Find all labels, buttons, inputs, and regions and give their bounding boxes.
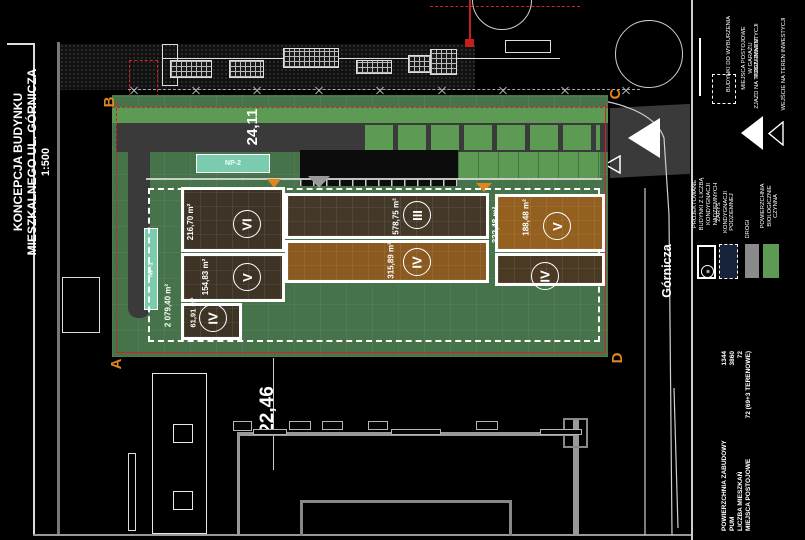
storey-number: IV (409, 256, 424, 268)
legend-label-bio-active: POWIERZCHNIA BIOLOGICZNIE CZYNNA (763, 175, 777, 237)
bay-window (368, 421, 388, 430)
legend-icon-building-outline: III (697, 245, 716, 279)
storey-number: V (239, 273, 254, 282)
stats-row: MIEJSCA POSTOJOWE 72 (69+3 TERENOWE) (745, 351, 753, 531)
area-label-iv-small: 61,91 m² (189, 293, 198, 333)
area-label-iv-center: 315,89 m² (387, 239, 396, 283)
bay-window (322, 421, 343, 430)
bay-window (233, 421, 252, 431)
stats-value: 72 (737, 351, 745, 358)
stats-row: LICZBA MIESZKAŃ 72 (737, 351, 745, 531)
stats-row: POWIERZCHNIA ZABUDOWY 1344 (721, 351, 729, 531)
building-iii (285, 193, 489, 239)
bay-window (253, 429, 287, 435)
area-label-v-right: 188,48 m² (522, 196, 531, 240)
legend-icon-roads (745, 244, 759, 278)
legend-label-entry-pedestrian: WEJŚCIE NA TEREN INWESTYCJI (780, 12, 788, 116)
legend-label-underground-outline: ZARYS KONDYGNACJI PODZIEMNEJ (719, 183, 733, 241)
bay-window (540, 429, 582, 435)
storey-badge-v-left: V (233, 263, 261, 291)
np2-label: NP-2 (225, 160, 241, 167)
legend-icon-underground (719, 244, 738, 279)
bay-window (476, 421, 498, 430)
boundary-red-left (116, 103, 117, 353)
corner-marker-a: A (107, 354, 127, 374)
legend-label-entry-vehicle: ZJAZD NA TEREN INWESTYCJI (753, 17, 761, 115)
storey-number: III (410, 210, 425, 221)
stats-row: PUM 3860 (729, 351, 737, 531)
lawn-stall-band (458, 152, 600, 178)
bay-window (289, 421, 311, 430)
storey-number: V (549, 222, 564, 231)
corner-marker-c: C (606, 84, 626, 104)
storey-badge-iv-center: IV (403, 248, 431, 276)
legend-icon-demolition-line (699, 38, 701, 96)
existing-building-wall (237, 432, 240, 535)
walkway-line (146, 178, 602, 180)
stats-value: 1344 (721, 351, 729, 365)
legend-icon-storeys: III (705, 270, 710, 274)
stats-value: 3860 (729, 351, 737, 365)
storey-badge-vi: VI (233, 210, 261, 238)
corner-marker-d: D (608, 348, 628, 368)
boundary-red-right (605, 103, 606, 352)
investment-site: NP-2 NP-1 VI III V IV IV V IV (112, 95, 608, 357)
boundary-red-bottom (116, 352, 605, 353)
garage-ramp-arrow-icon (308, 176, 330, 188)
legend-icon-bio-active (763, 244, 779, 278)
corner-marker-b: B (100, 92, 120, 112)
area-label-v-left: 154,83 m² (201, 253, 211, 301)
storey-number: IV (537, 270, 552, 282)
bay-window (391, 429, 441, 435)
storey-badge-v-right: V (543, 212, 571, 240)
dimension-top: 24,11 (244, 104, 262, 150)
area-label-iv-right: 332,48 m² (491, 199, 501, 251)
legend-label-demolition: BUDYNKI DO WYBURZENIA (725, 8, 733, 100)
storey-badge-iv-small: IV (199, 304, 227, 332)
site-plan-canvas: KONCEPCJA BUDYNKU MIESZKALNEGO UL. GÓRNI… (0, 0, 805, 540)
stats-label: MIEJSCA POSTOJOWE (745, 459, 753, 531)
site-entry-arrow-icon (628, 118, 660, 158)
stats-label: LICZBA MIESZKAŃ (737, 472, 745, 531)
garage-area-label: 2 079,40 m² (163, 272, 174, 340)
boundary-red-top (112, 107, 608, 108)
area-label-vi: 216,70 m² (186, 197, 196, 247)
legend-icon-storey-circle: III (701, 265, 714, 278)
existing-building-court (300, 500, 512, 536)
area-label-iii: 578,75 m² (392, 195, 401, 239)
lawn-strip-top (112, 107, 608, 123)
storey-number: IV (205, 312, 220, 324)
building-notch (173, 491, 193, 510)
storey-number: VI (239, 218, 254, 230)
stats-value: 72 (69+3 TERENOWE) (745, 351, 753, 418)
storey-badge-iii: III (403, 201, 431, 229)
legend-icon-entry-filled-triangle (741, 116, 763, 150)
legend-icon-entry-outline-triangle (768, 121, 784, 146)
dimension-bottom: 22,46 (257, 368, 279, 452)
building-notch (173, 424, 193, 443)
storey-badge-iv-right: IV (531, 262, 559, 290)
stats-label: PUM (729, 517, 737, 531)
stats-table: POWIERZCHNIA ZABUDOWY 1344 PUM 3860 LICZ… (713, 351, 761, 531)
stats-label: POWIERZCHNIA ZABUDOWY (721, 440, 729, 531)
street-name: Górnicza (659, 233, 675, 309)
existing-building-outline (62, 277, 100, 333)
parking-bay-np2: NP-2 (196, 154, 270, 173)
legend-label-roads: DROGI (744, 217, 752, 241)
grass-parking-stalls-road (365, 125, 600, 150)
existing-structure-outline (128, 453, 136, 531)
legend-label-designed-buildings: PROJEKTOWANE BUDYNKI Z LICZBĄ KONDYGNACJ… (695, 167, 717, 241)
